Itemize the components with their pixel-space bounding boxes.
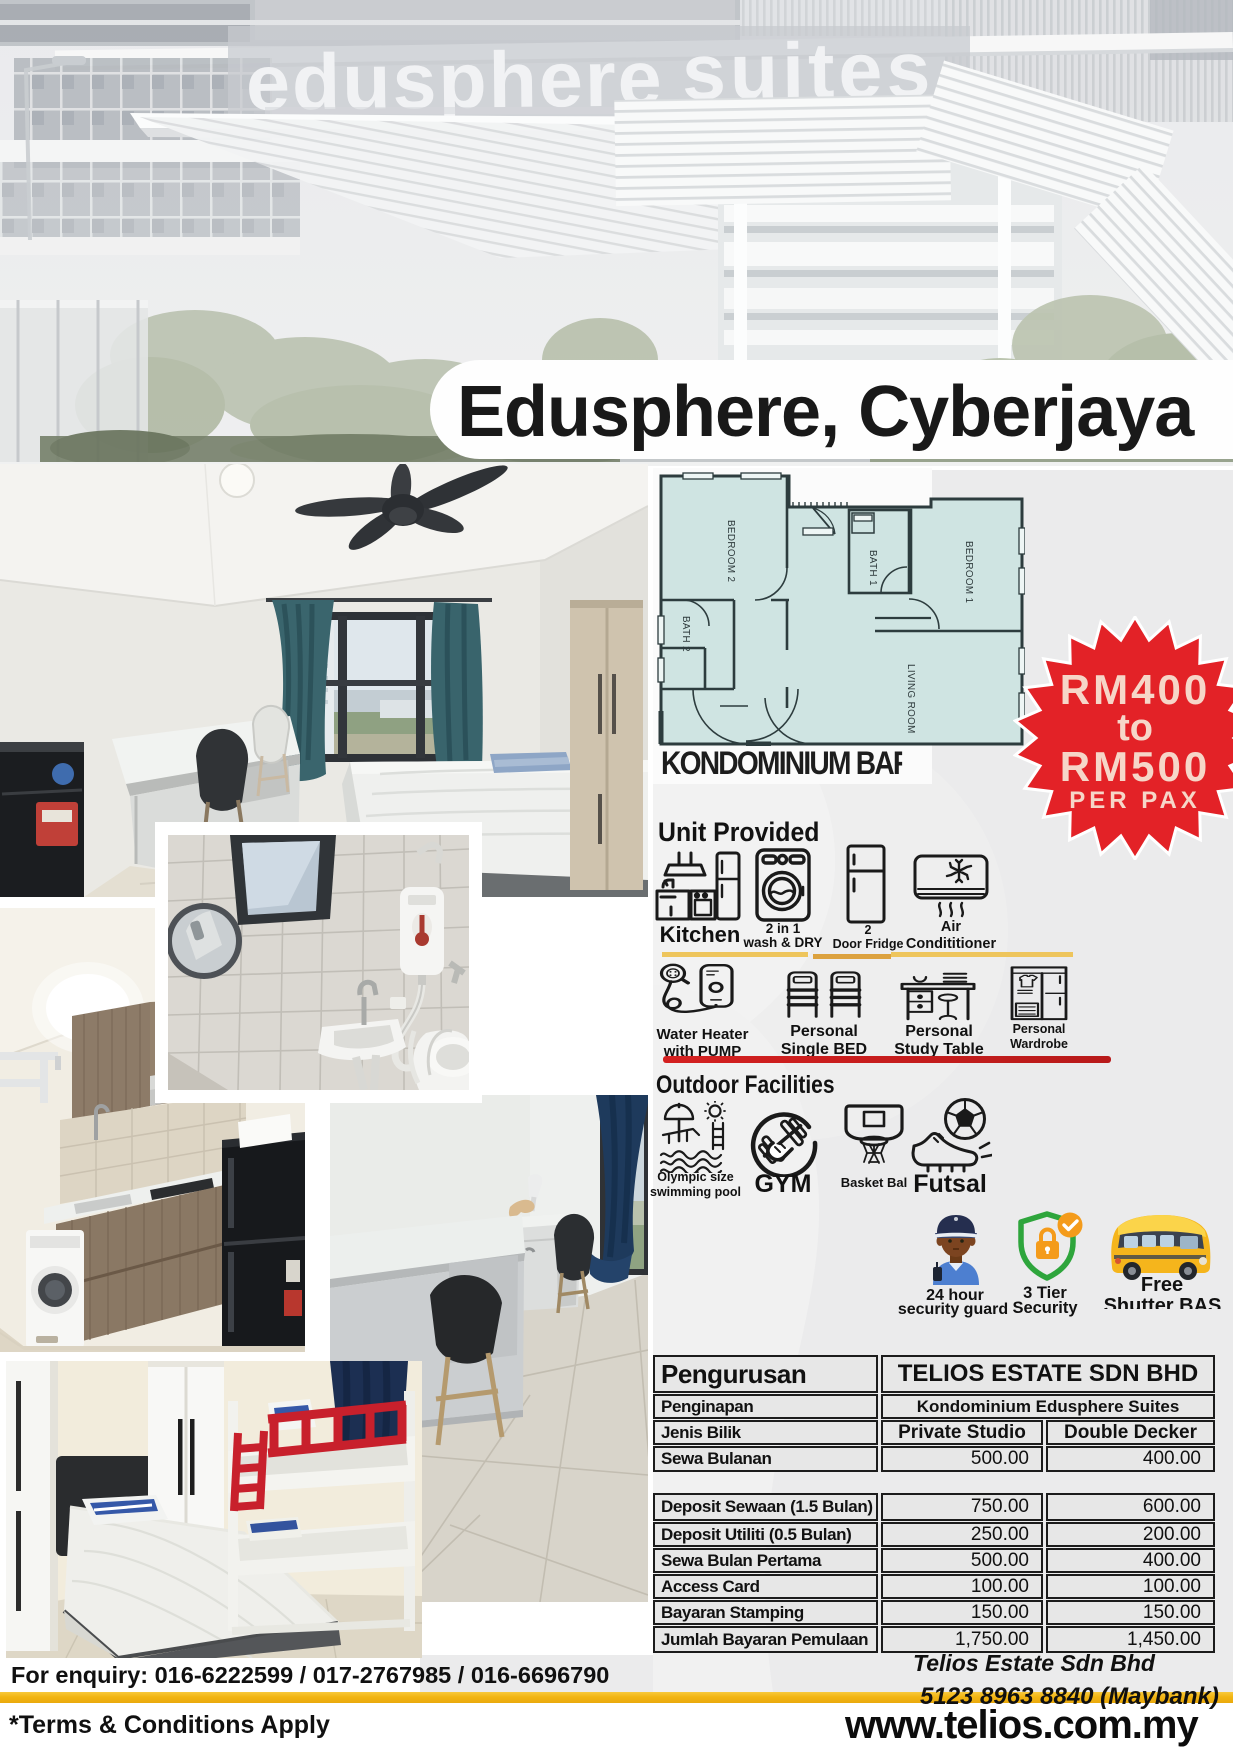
- svg-text:BATH 1: BATH 1: [867, 550, 878, 586]
- svg-text:LIVING ROOM: LIVING ROOM: [905, 664, 916, 734]
- svg-text:PER PAX: PER PAX: [1069, 787, 1201, 814]
- svg-text:RM400: RM400: [1060, 666, 1210, 713]
- svg-text:RM500: RM500: [1060, 743, 1210, 790]
- svg-text:BEDROOM 1: BEDROOM 1: [963, 541, 974, 603]
- svg-text:BATH 2: BATH 2: [680, 616, 691, 652]
- svg-text:BEDROOM 2: BEDROOM 2: [725, 520, 736, 582]
